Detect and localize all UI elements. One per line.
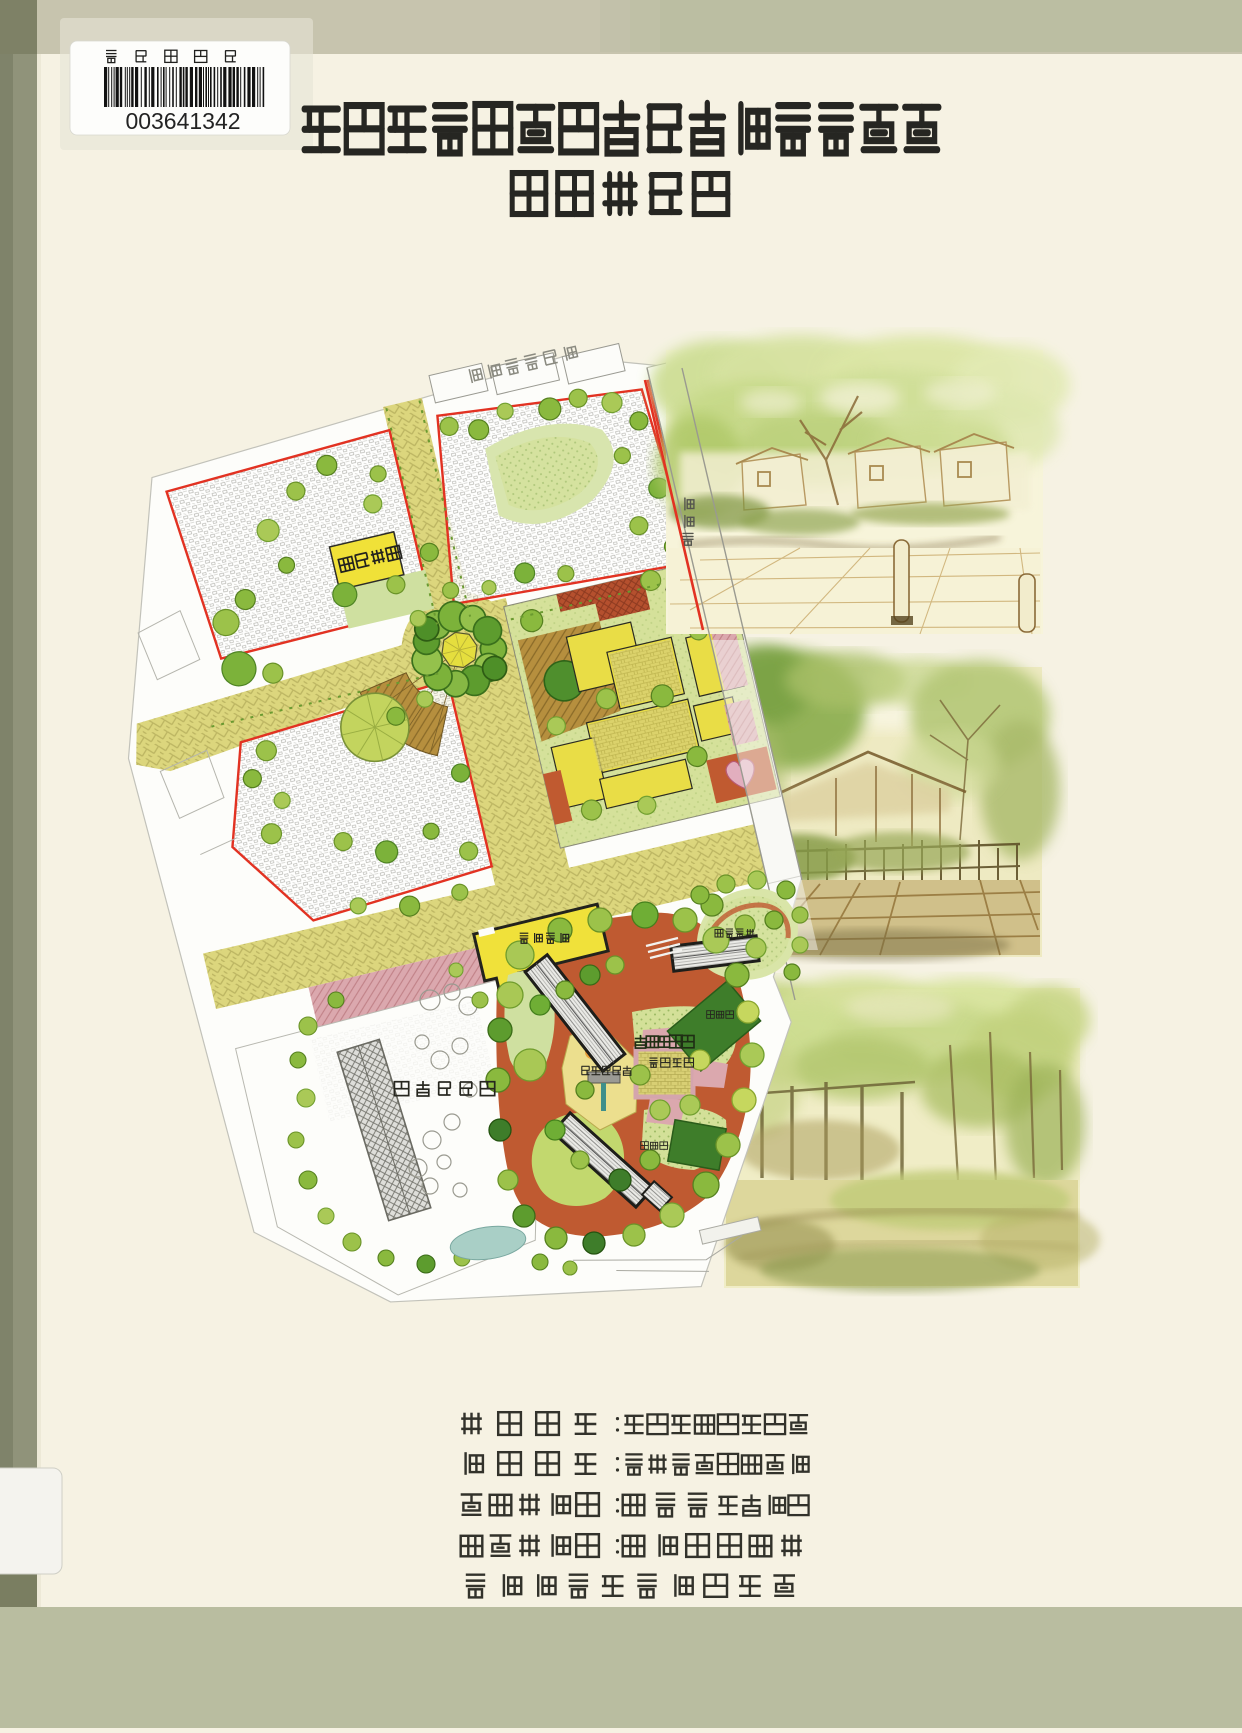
svg-text:003641342: 003641342	[125, 108, 240, 134]
